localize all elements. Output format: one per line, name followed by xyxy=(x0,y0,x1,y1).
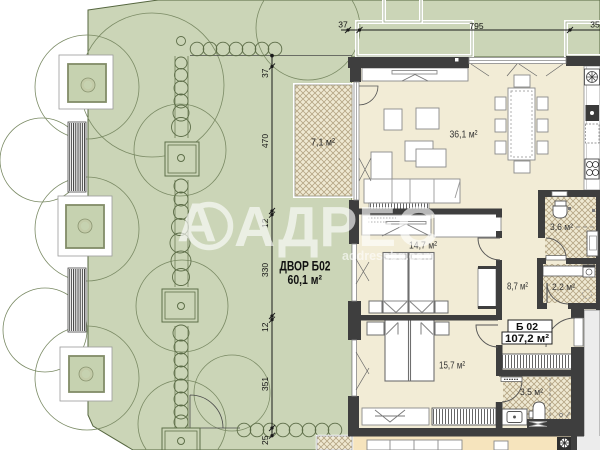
svg-text:Б 02: Б 02 xyxy=(516,321,538,333)
svg-text:7,1 м²: 7,1 м² xyxy=(311,138,336,149)
svg-text:8,7 м²: 8,7 м² xyxy=(507,282,529,293)
svg-text:15,7 м²: 15,7 м² xyxy=(439,360,465,372)
svg-text:60,1 м²: 60,1 м² xyxy=(288,272,323,287)
svg-text:А: А xyxy=(177,191,217,253)
svg-text:37: 37 xyxy=(338,20,348,30)
svg-text:795: 795 xyxy=(469,21,483,31)
svg-text:addressbg.com: addressbg.com xyxy=(342,249,434,263)
svg-text:107,2 м²: 107,2 м² xyxy=(505,333,549,345)
svg-text:351: 351 xyxy=(260,377,270,391)
svg-text:12: 12 xyxy=(260,322,270,332)
svg-text:470: 470 xyxy=(260,134,270,148)
svg-text:37: 37 xyxy=(260,68,270,78)
svg-text:330: 330 xyxy=(260,263,270,277)
svg-text:3,5 м²: 3,5 м² xyxy=(520,387,543,398)
svg-text:35: 35 xyxy=(590,20,600,30)
svg-text:3,6 м²: 3,6 м² xyxy=(550,222,573,233)
svg-text:2,2 м²: 2,2 м² xyxy=(552,282,575,293)
svg-text:36,1 м²: 36,1 м² xyxy=(450,129,478,141)
svg-text:25: 25 xyxy=(260,435,270,445)
